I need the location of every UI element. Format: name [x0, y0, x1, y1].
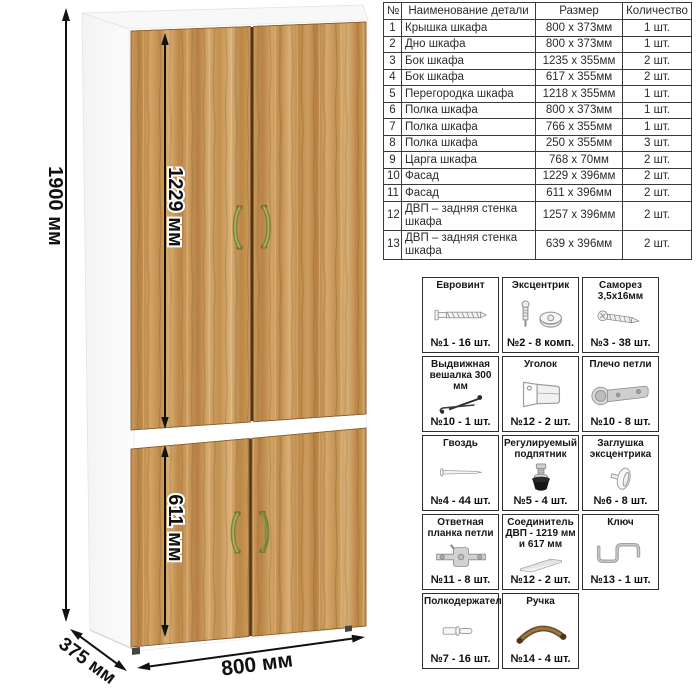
part-num: 6	[384, 102, 402, 119]
part-num: 3	[384, 53, 402, 70]
height-dimension-label: 1900 мм	[44, 166, 66, 246]
part-size: 611 х 396мм	[536, 185, 623, 202]
upper-door-dimension-label: 1229 мм	[164, 167, 186, 247]
confirmat-screw-icon	[424, 291, 497, 338]
part-name: Фасад	[402, 168, 536, 185]
hinge-arm-icon	[584, 370, 657, 417]
part-name: Полка шкафа	[402, 135, 536, 152]
hardware-item-ugolok: Уголок №12 - 2 шт.	[502, 356, 579, 432]
part-num: 13	[384, 230, 402, 259]
hardware-count: №1 - 16 шт.	[430, 338, 490, 350]
part-size: 639 х 396мм	[536, 230, 623, 259]
right-foot	[345, 626, 352, 633]
table-row: 4Бок шкафа617 х 355мм2 шт.	[384, 69, 692, 86]
part-qty: 1 шт.	[623, 119, 692, 136]
lower-door-dimension-label: 611 мм	[164, 494, 186, 561]
part-qty: 1 шт.	[623, 102, 692, 119]
hardware-count: №13 - 1 шт.	[590, 575, 650, 587]
tapping-screw-icon	[584, 302, 657, 338]
col-header-qty: Количество	[623, 3, 692, 20]
part-num: 1	[384, 20, 402, 37]
part-size: 1229 х 396мм	[536, 168, 623, 185]
cam-lock-icon	[504, 291, 577, 338]
hardware-count: №3 - 38 шт.	[590, 338, 650, 350]
part-name: Бок шкафа	[402, 53, 536, 70]
hardware-title: Полкодержатель	[424, 596, 497, 607]
part-qty: 2 шт.	[623, 230, 692, 259]
part-qty: 2 шт.	[623, 185, 692, 202]
hardware-count: №10 - 1 шт.	[430, 417, 490, 429]
hardware-count: №14 - 4 шт.	[510, 654, 570, 666]
part-qty: 2 шт.	[623, 201, 692, 230]
part-size: 617 х 355мм	[536, 69, 623, 86]
table-row: 1Крышка шкафа800 х 373мм1 шт.	[384, 20, 692, 37]
part-size: 250 х 355мм	[536, 135, 623, 152]
part-name: ДВП – задняя стенка шкафа	[402, 230, 536, 259]
table-row: 12ДВП – задняя стенка шкафа1257 х 396мм2…	[384, 201, 692, 230]
hardware-item-eurovint: Евровинт №1 - 16 шт.	[422, 277, 499, 353]
part-qty: 2 шт.	[623, 53, 692, 70]
table-row: 11Фасад611 х 396мм2 шт.	[384, 185, 692, 202]
table-row: 7Полка шкафа766 х 355мм1 шт.	[384, 119, 692, 136]
table-row: 3Бок шкафа1235 х 355мм2 шт.	[384, 53, 692, 70]
part-size: 1257 х 396мм	[536, 201, 623, 230]
upper-left-door	[131, 27, 251, 431]
hardware-item-shelf-pin: Полкодержатель №7 - 16 шт.	[422, 593, 499, 669]
part-size: 768 х 70мм	[536, 152, 623, 169]
part-qty: 1 шт.	[623, 86, 692, 103]
shelf-pin-icon	[424, 607, 497, 654]
hardware-count: №7 - 16 шт.	[430, 654, 490, 666]
col-header-num: №	[384, 3, 402, 20]
table-row: 5Перегородка шкафа1218 х 355мм1 шт.	[384, 86, 692, 103]
hardware-item-hanger: Выдвижная вешалка 300 мм №10 - 1 шт.	[422, 356, 499, 432]
hardware-title: Соединитель ДВП - 1219 мм и 617 мм	[504, 517, 577, 551]
hardware-title: Саморез 3,5х16мм	[584, 280, 657, 302]
col-header-name: Наименование детали	[402, 3, 536, 20]
part-name: ДВП – задняя стенка шкафа	[402, 201, 536, 230]
corner-bracket-icon	[504, 370, 577, 417]
part-name: Полка шкафа	[402, 102, 536, 119]
hardware-title: Выдвижная вешалка 300 мм	[424, 359, 497, 393]
hardware-item-cam-plug: Заглушка эксцентрика №6 - 8 шт.	[582, 435, 659, 511]
part-qty: 1 шт.	[623, 36, 692, 53]
part-name: Фасад	[402, 185, 536, 202]
cam-plug-icon	[584, 460, 657, 496]
part-name: Бок шкафа	[402, 69, 536, 86]
hardware-count: №2 - 8 комп.	[507, 338, 574, 350]
hardware-item-hinge-arm: Плечо петли №10 - 8 шт.	[582, 356, 659, 432]
table-row: 2Дно шкафа800 х 373мм1 шт.	[384, 36, 692, 53]
table-row: 13ДВП – задняя стенка шкафа639 х 396мм2 …	[384, 230, 692, 259]
assembly-sheet: 1900 мм 1229 мм 611 мм 800 мм 375 мм № Н…	[0, 0, 700, 700]
part-qty: 2 шт.	[623, 152, 692, 169]
part-name: Полка шкафа	[402, 119, 536, 136]
lower-left-door	[131, 439, 249, 648]
part-name: Царга шкафа	[402, 152, 536, 169]
hardware-item-excentric: Эксцентрик №2 - 8 комп.	[502, 277, 579, 353]
part-name: Крышка шкафа	[402, 20, 536, 37]
part-qty: 1 шт.	[623, 20, 692, 37]
part-qty: 3 шт.	[623, 135, 692, 152]
part-num: 10	[384, 168, 402, 185]
part-num: 7	[384, 119, 402, 136]
part-num: 9	[384, 152, 402, 169]
hardware-count: №10 - 8 шт.	[590, 417, 650, 429]
hinge-plate-icon	[424, 539, 497, 575]
part-num: 2	[384, 36, 402, 53]
hardware-item-handle: Ручка №14 - 4 шт.	[502, 593, 579, 669]
col-header-size: Размер	[536, 3, 623, 20]
hardware-item-hdf-connector: Соединитель ДВП - 1219 мм и 617 мм №12 -…	[502, 514, 579, 590]
part-num: 8	[384, 135, 402, 152]
hardware-item-key: Ключ №13 - 1 шт.	[582, 514, 659, 590]
part-name: Дно шкафа	[402, 36, 536, 53]
part-size: 800 х 373мм	[536, 36, 623, 53]
part-qty: 2 шт.	[623, 168, 692, 185]
hardware-item-nail: Гвоздь №4 - 44 шт.	[422, 435, 499, 511]
part-qty: 2 шт.	[623, 69, 692, 86]
part-size: 1218 х 355мм	[536, 86, 623, 103]
hardware-count: №12 - 2 шт.	[510, 575, 570, 587]
part-size: 766 х 355мм	[536, 119, 623, 136]
hardware-title: Ручка	[504, 596, 577, 607]
parts-table: № Наименование детали Размер Количество …	[383, 2, 692, 260]
hardware-count: №6 - 8 шт.	[594, 496, 648, 508]
hardware-count: №11 - 8 шт.	[431, 575, 491, 587]
hardware-title: Эксцентрик	[504, 280, 577, 291]
table-row: 9Царга шкафа768 х 70мм2 шт.	[384, 152, 692, 169]
part-size: 800 х 373мм	[536, 20, 623, 37]
hdf-connector-icon	[504, 551, 577, 575]
key-icon	[584, 529, 657, 575]
table-row: 6Полка шкафа800 х 373мм1 шт.	[384, 102, 692, 119]
adjustable-foot-icon	[504, 460, 577, 496]
part-size: 800 х 373мм	[536, 102, 623, 119]
cabinet-left-side	[82, 13, 137, 651]
part-num: 5	[384, 86, 402, 103]
hardware-item-samorez: Саморез 3,5х16мм №3 - 38 шт.	[582, 277, 659, 353]
table-header-row: № Наименование детали Размер Количество	[384, 3, 692, 20]
part-num: 12	[384, 201, 402, 230]
hardware-title: Уголок	[504, 359, 577, 370]
part-size: 1235 х 355мм	[536, 53, 623, 70]
hardware-count: №5 - 4 шт.	[514, 496, 568, 508]
part-num: 4	[384, 69, 402, 86]
table-row: 10Фасад1229 х 396мм2 шт.	[384, 168, 692, 185]
nail-icon	[424, 449, 497, 496]
hardware-count: №12 - 2 шт.	[510, 417, 570, 429]
hardware-title: Ключ	[584, 517, 657, 528]
part-num: 11	[384, 185, 402, 202]
hardware-title: Гвоздь	[424, 438, 497, 449]
hardware-count: №4 - 44 шт.	[430, 496, 490, 508]
left-foot	[132, 647, 140, 655]
hardware-title: Ответная планка петли	[424, 517, 497, 539]
handle-icon	[504, 607, 577, 654]
hardware-title: Регулируемый подпятник	[504, 438, 577, 460]
part-name: Перегородка шкафа	[402, 86, 536, 103]
hardware-title: Евровинт	[424, 280, 497, 291]
width-dimension-label: 800 мм	[220, 648, 294, 680]
hardware-grid: Евровинт №1 - 16 шт. Эксцентрик	[422, 277, 659, 669]
pullout-hanger-icon	[424, 393, 497, 417]
table-row: 8Полка шкафа250 х 355мм3 шт.	[384, 135, 692, 152]
hardware-title: Плечо петли	[584, 359, 657, 370]
hardware-item-foot: Регулируемый подпятник №5 - 4 шт.	[502, 435, 579, 511]
hardware-item-hinge-plate: Ответная планка петли №11 - 8 шт.	[422, 514, 499, 590]
hardware-title: Заглушка эксцентрика	[584, 438, 657, 460]
